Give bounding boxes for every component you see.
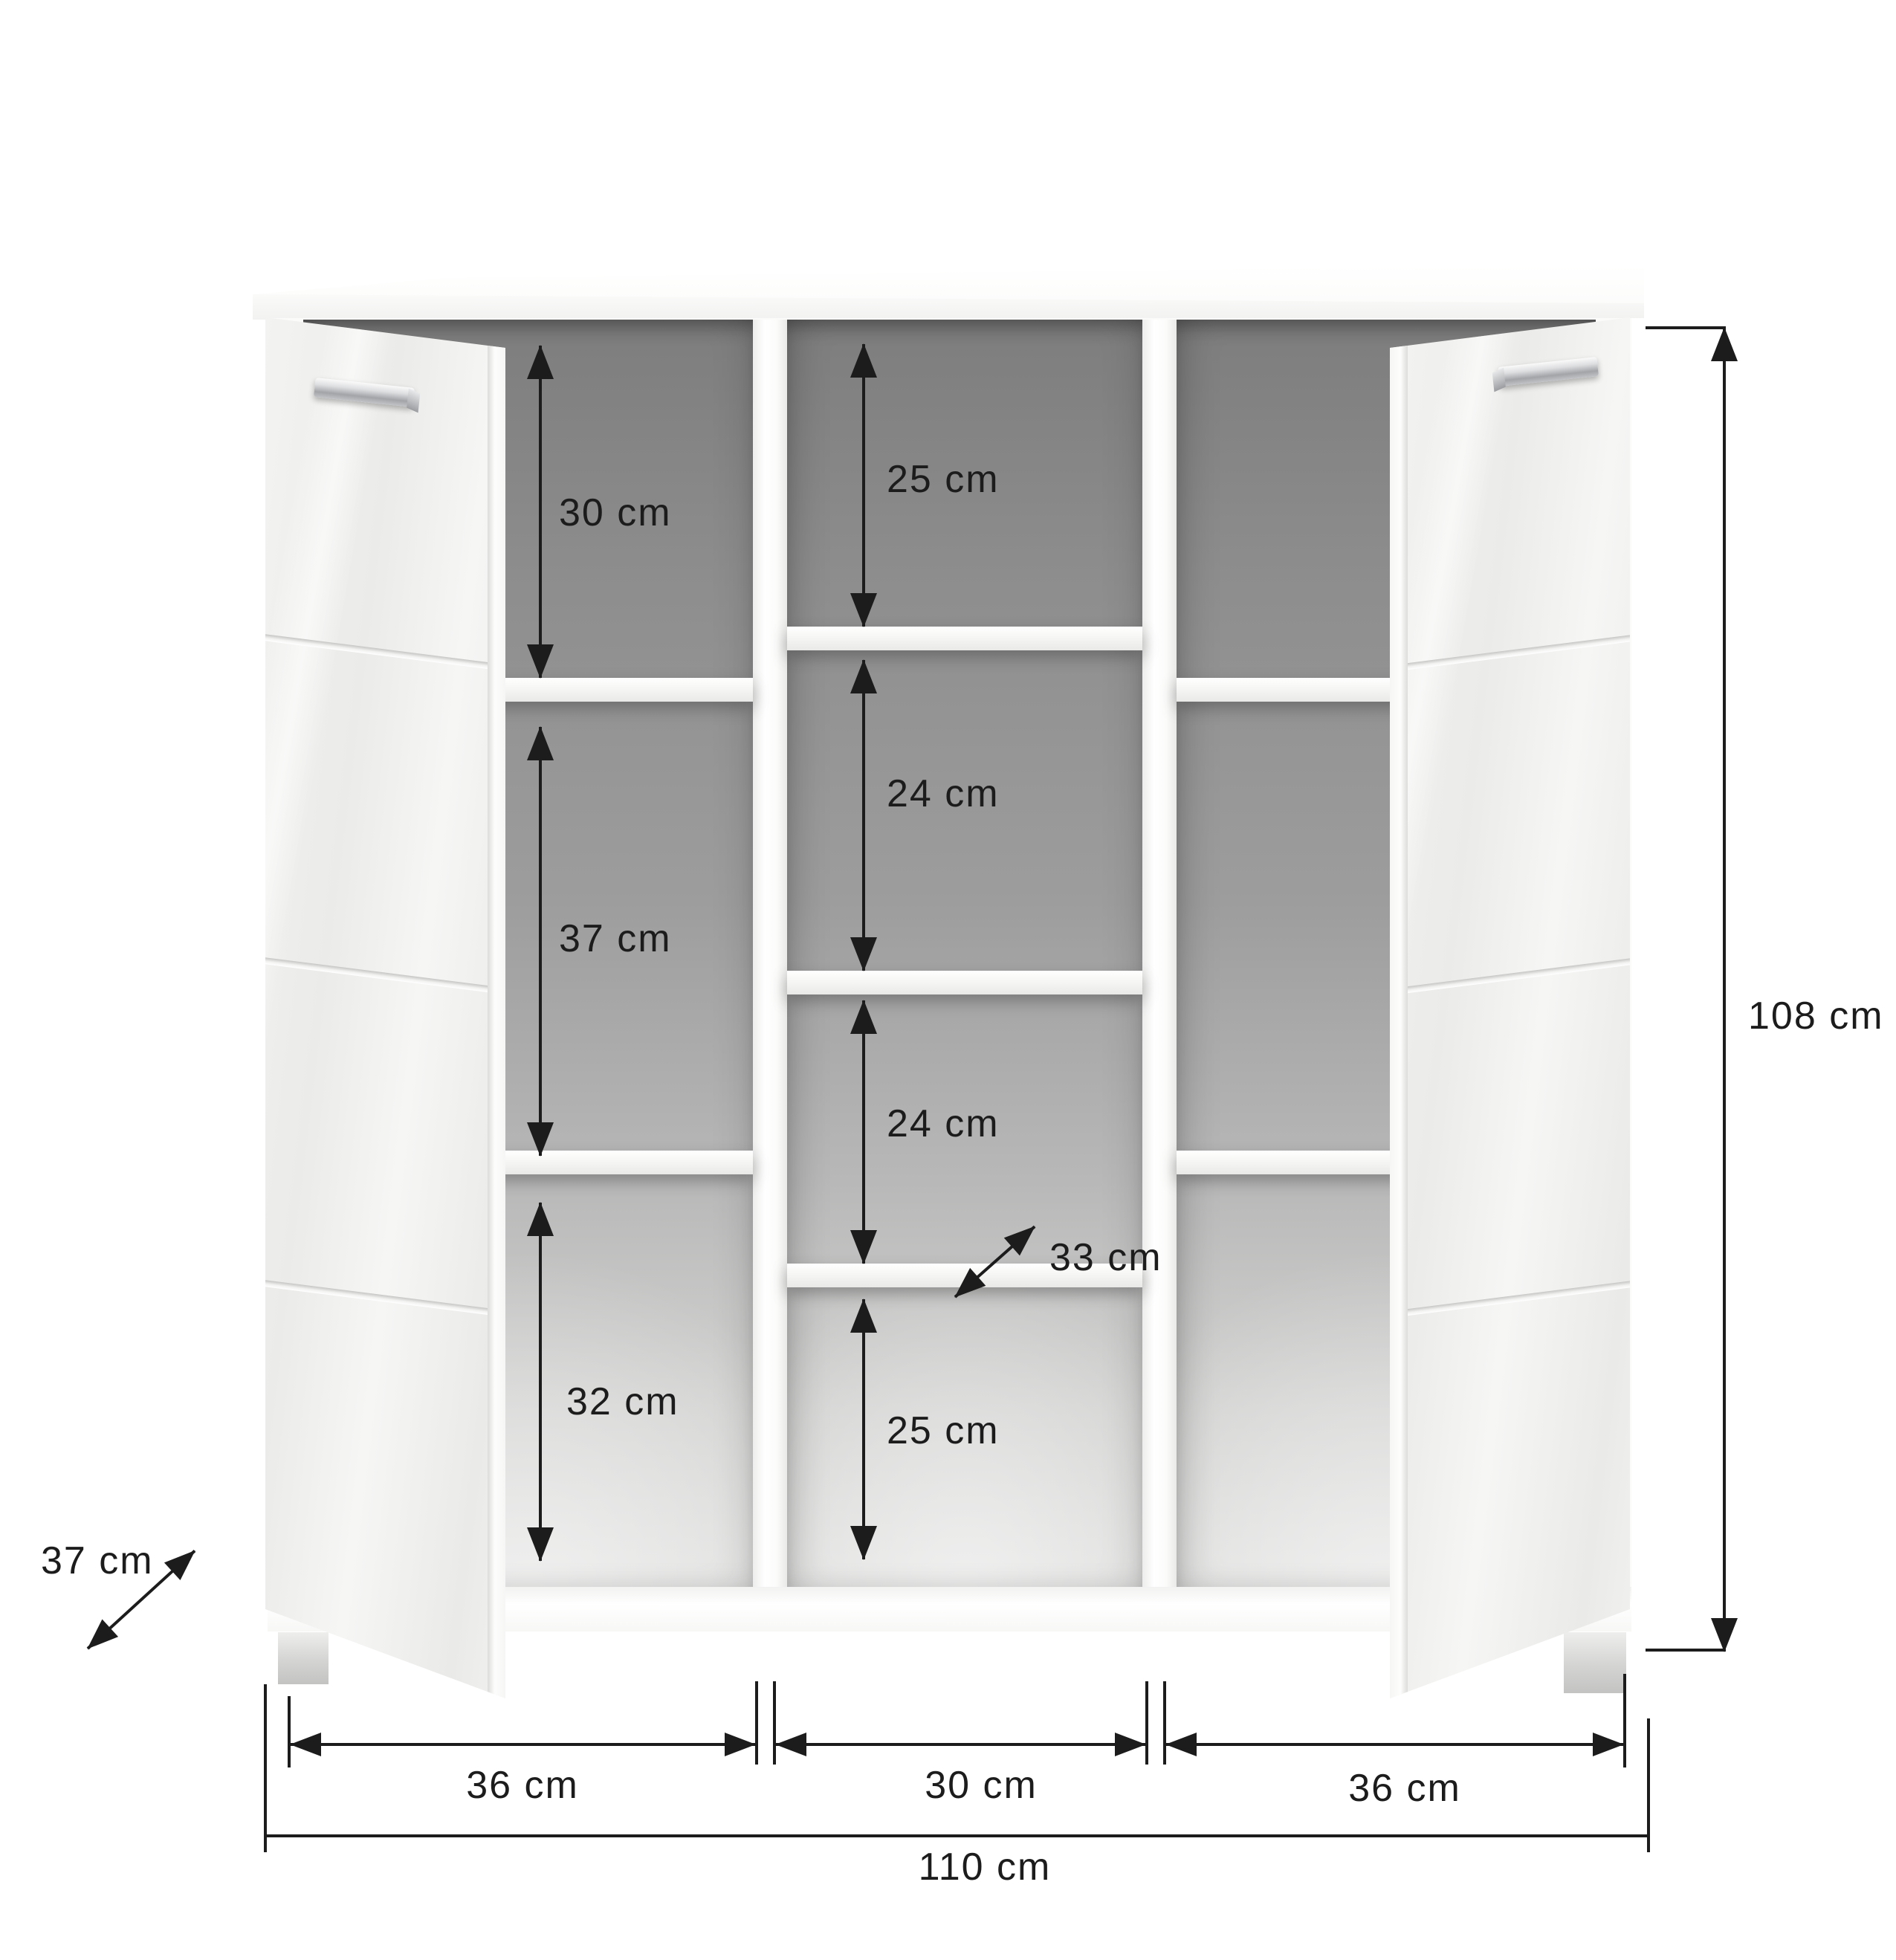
dimension-diagram: 30 cm 37 cm 32 cm 25 cm 24 cm 24 cm 25 c… xyxy=(0,0,1896,1960)
door-edge-face xyxy=(1390,317,1408,1698)
dim-label-middle-3: 24 cm xyxy=(887,1102,1000,1146)
interior-column-middle xyxy=(787,320,1142,1587)
dim-label-width-total: 110 cm xyxy=(866,1845,1104,1889)
shelf-middle-1 xyxy=(787,627,1142,650)
dim-label-shelf-depth: 33 cm xyxy=(1049,1235,1162,1280)
dim-arrow-middle-1 xyxy=(862,344,865,627)
dim-arrow-left-top xyxy=(539,346,542,678)
door-edge-face xyxy=(488,317,505,1698)
dim-arrow-width-right xyxy=(1166,1743,1623,1746)
dim-label-width-right: 36 cm xyxy=(1293,1766,1516,1811)
extension-line xyxy=(1647,1718,1650,1852)
shelf-middle-2 xyxy=(787,971,1142,994)
door-groove xyxy=(1390,634,1638,672)
dim-arrow-middle-3 xyxy=(862,1000,865,1264)
door-groove xyxy=(1390,957,1638,995)
door-left-open[interactable] xyxy=(265,317,505,1698)
door-groove xyxy=(263,957,511,995)
partition-right xyxy=(1142,320,1177,1587)
dim-arrow-middle-4 xyxy=(862,1299,865,1559)
door-groove xyxy=(263,1280,511,1318)
dim-label-cabinet-depth: 37 cm xyxy=(41,1539,154,1583)
extension-line xyxy=(288,1696,291,1767)
dim-label-middle-1: 25 cm xyxy=(887,457,1000,502)
cabinet-foot-left xyxy=(278,1632,329,1684)
dim-arrow-width-middle xyxy=(776,1743,1145,1746)
door-groove xyxy=(263,634,511,672)
dim-label-width-left: 36 cm xyxy=(411,1763,634,1808)
dim-label-left-bottom: 32 cm xyxy=(566,1380,679,1424)
dim-label-left-middle: 37 cm xyxy=(559,916,672,961)
dim-arrow-height xyxy=(1723,328,1726,1652)
dim-arrow-left-middle xyxy=(539,727,542,1156)
dim-arrow-middle-2 xyxy=(862,660,865,971)
dim-label-left-top: 30 cm xyxy=(559,491,672,535)
door-groove xyxy=(1390,1280,1638,1318)
dim-label-middle-2: 24 cm xyxy=(887,772,1000,816)
door-right-open[interactable] xyxy=(1390,317,1630,1698)
dim-arrow-width-left xyxy=(291,1743,755,1746)
dim-arrow-left-bottom xyxy=(539,1203,542,1561)
dim-label-middle-4: 25 cm xyxy=(887,1408,1000,1453)
dim-label-width-middle: 30 cm xyxy=(870,1763,1093,1808)
dim-line-width-total xyxy=(265,1834,1649,1837)
dim-label-height: 108 cm xyxy=(1748,994,1884,1038)
extension-line xyxy=(264,1684,267,1852)
partition-left xyxy=(753,320,787,1587)
cabinet-foot-right xyxy=(1564,1632,1626,1693)
